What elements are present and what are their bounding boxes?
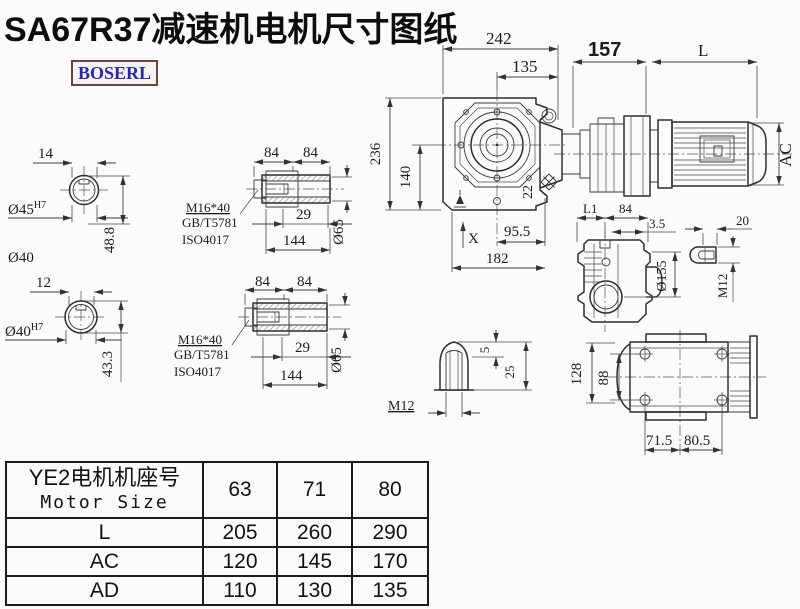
dim-80-5: 80.5: [684, 433, 710, 449]
dim-20: 20: [736, 213, 749, 228]
side-fins: [584, 252, 602, 282]
motor-size-table: YE2电机机座号 Motor Size 63 71 80 L 205 260 2…: [5, 461, 429, 606]
dim-L1: L1: [583, 201, 597, 216]
table-header-row: YE2电机机座号 Motor Size 63 71 80: [6, 462, 428, 518]
bolt-std-gb: GB/T5781: [182, 215, 238, 230]
dim-71-5: 71.5: [646, 433, 672, 449]
dim-140: 140: [398, 166, 414, 189]
dim-84b: 84: [303, 145, 319, 161]
dim-dia-155: Ø155: [655, 260, 670, 291]
cell: 110: [203, 576, 277, 605]
dim-157: 157: [588, 39, 621, 61]
gearbox-side-view: L1 84 3.5 Ø155: [577, 201, 681, 332]
row-label: AC: [6, 547, 203, 576]
size-71: 71: [277, 462, 352, 518]
dim-od-40: Ø40: [8, 250, 34, 266]
cell: 120: [203, 547, 277, 576]
plug-detail: M12 5 25: [388, 330, 532, 417]
gearbox-bottom-view: 128 88 71.5 80.5: [569, 330, 766, 456]
row-label: L: [6, 518, 203, 547]
bolt-spec: M16*40: [178, 332, 222, 347]
dim-3-5: 3.5: [649, 216, 665, 231]
table-row-AC: AC 120 145 170: [6, 547, 428, 576]
bolt-spec: M16*40: [186, 200, 230, 215]
dim-key-width: 12: [36, 275, 51, 291]
dim-144: 144: [283, 233, 306, 249]
dim-29: 29: [296, 207, 311, 223]
thread-m12: M12: [388, 399, 414, 414]
bolt-std-iso: ISO4017: [182, 232, 229, 247]
dim-242: 242: [486, 29, 512, 48]
cell: 260: [277, 518, 352, 547]
cell: 135: [352, 576, 428, 605]
dim-bore-label: Ø40H7: [5, 322, 43, 340]
cell: 145: [277, 547, 352, 576]
cell: 170: [352, 547, 428, 576]
dim-L: L: [698, 41, 708, 60]
dim-236: 236: [368, 142, 384, 165]
dim-135: 135: [512, 57, 538, 76]
dim-dia-65: Ø65: [329, 347, 345, 373]
dim-25: 25: [502, 366, 517, 379]
dim-144: 144: [280, 368, 303, 384]
dim-bore-label: Ø45H7: [8, 200, 46, 218]
dim-84b: 84: [297, 274, 313, 290]
dim-dia-65: Ø65: [331, 219, 347, 245]
hollow-shaft-section-view-bottom: 12 Ø40H7 43.3: [5, 275, 128, 382]
dim-height-48-8: 48.8: [102, 227, 118, 253]
dim-29: 29: [295, 340, 310, 356]
dim-height-43-3: 43.3: [100, 351, 116, 377]
dim-84: 84: [619, 201, 633, 216]
dim-88: 88: [596, 371, 612, 386]
table-header-motor-size: YE2电机机座号 Motor Size: [6, 462, 203, 518]
dim-182: 182: [486, 251, 509, 267]
output-shaft-side-view-bottom: 84 84 29 144 Ø65 M16*40 GB/T5781 ISO4017: [174, 274, 351, 389]
cell: 290: [352, 518, 428, 547]
size-80: 80: [352, 462, 428, 518]
dim-AC: AC: [776, 143, 795, 167]
table-row-AD: AD 110 130 135: [6, 576, 428, 605]
drawing-sheet: SA67R37减速机电机尺寸图纸 BOSERL 14: [0, 0, 800, 609]
hollow-shaft-section-view-top: 14 Ø45H7 48.8 Ø40: [8, 146, 130, 266]
gearbox-motor-front-view: 242 135 157 L 236 140 22: [368, 29, 795, 272]
bolt-std-iso: ISO4017: [174, 364, 221, 379]
dim-22: 22: [521, 185, 536, 199]
cell: 130: [277, 576, 352, 605]
thread-m12: M12: [715, 274, 730, 299]
dim-84a: 84: [264, 145, 280, 161]
vent-plug: [454, 190, 466, 207]
table-row-L: L 205 260 290: [6, 518, 428, 547]
dim-95-5: 95.5: [504, 224, 530, 240]
cell: 205: [203, 518, 277, 547]
dim-128: 128: [569, 363, 585, 386]
dim-5: 5: [477, 347, 492, 354]
dim-84a: 84: [255, 274, 271, 290]
header-cn: YE2电机机座号: [7, 465, 202, 491]
dim-key-width: 14: [38, 146, 54, 162]
bolt-std-gb: GB/T5781: [174, 347, 230, 362]
output-shaft-side-view-top: 84 84 29 144 Ø65 M16*40 GB/T5781 ISO4017: [182, 145, 352, 254]
label-x: X: [468, 231, 479, 247]
size-63: 63: [203, 462, 277, 518]
header-en: Motor Size: [7, 491, 202, 515]
row-label: AD: [6, 576, 203, 605]
slot-detail: 20 M12: [685, 213, 752, 302]
